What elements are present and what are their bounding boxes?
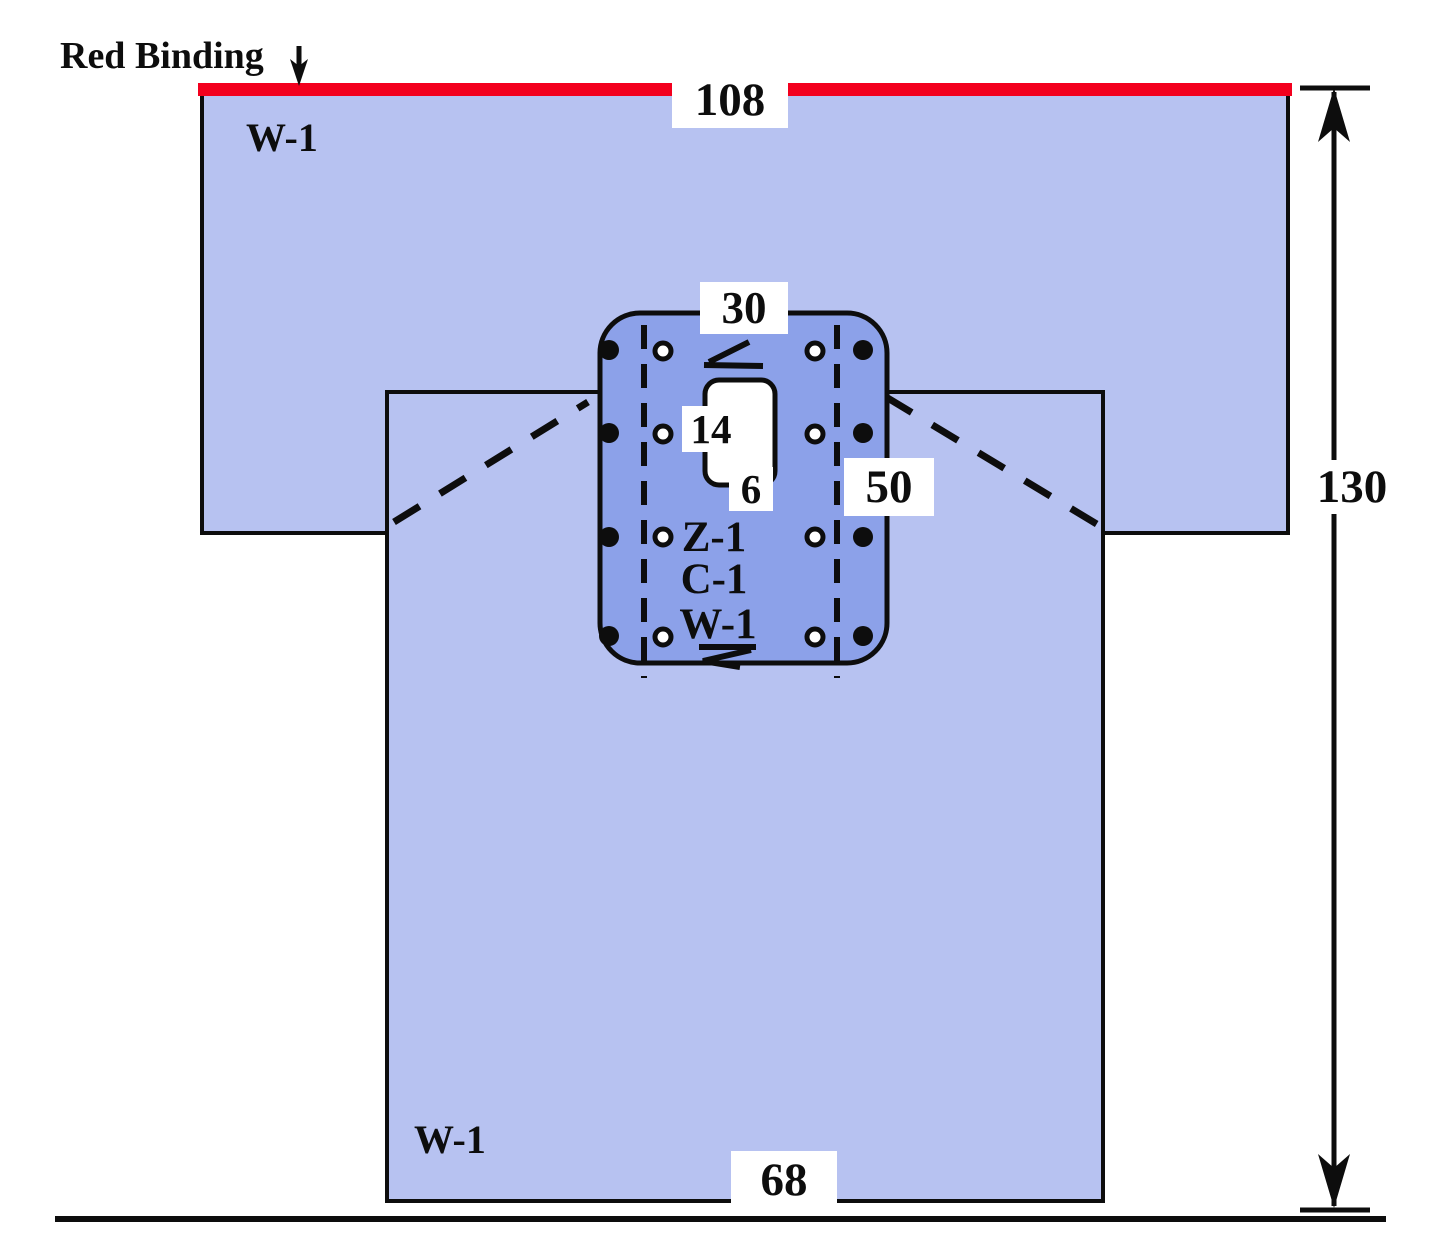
- drape-diagram: Red Binding W-1 W-1 108 30 14 6 50 130 6…: [0, 0, 1440, 1252]
- down-arrow-icon: [290, 46, 308, 86]
- panel-layer-label-c1: C-1: [668, 557, 760, 601]
- left-fold-dashed-line: [394, 402, 588, 522]
- material-label-top: W-1: [246, 116, 318, 160]
- dimension-label-panel-height: 50: [844, 458, 934, 516]
- dimension-label-fenestration-length: 14: [682, 406, 740, 452]
- height-dimension-line: [1300, 88, 1370, 1210]
- dimension-label-panel-width: 30: [700, 282, 788, 334]
- dimension-label-fenestration-width: 6: [729, 467, 773, 511]
- material-label-bottom: W-1: [414, 1118, 486, 1162]
- red-binding-label: Red Binding: [60, 34, 264, 78]
- panel-layer-label-z1: Z-1: [668, 514, 760, 560]
- panel-layer-label-w1: W-1: [664, 602, 772, 646]
- dimension-label-overall-height: 130: [1306, 460, 1398, 514]
- dimension-label-bottom-width: 68: [731, 1151, 837, 1209]
- dimension-label-top-width: 108: [672, 72, 788, 128]
